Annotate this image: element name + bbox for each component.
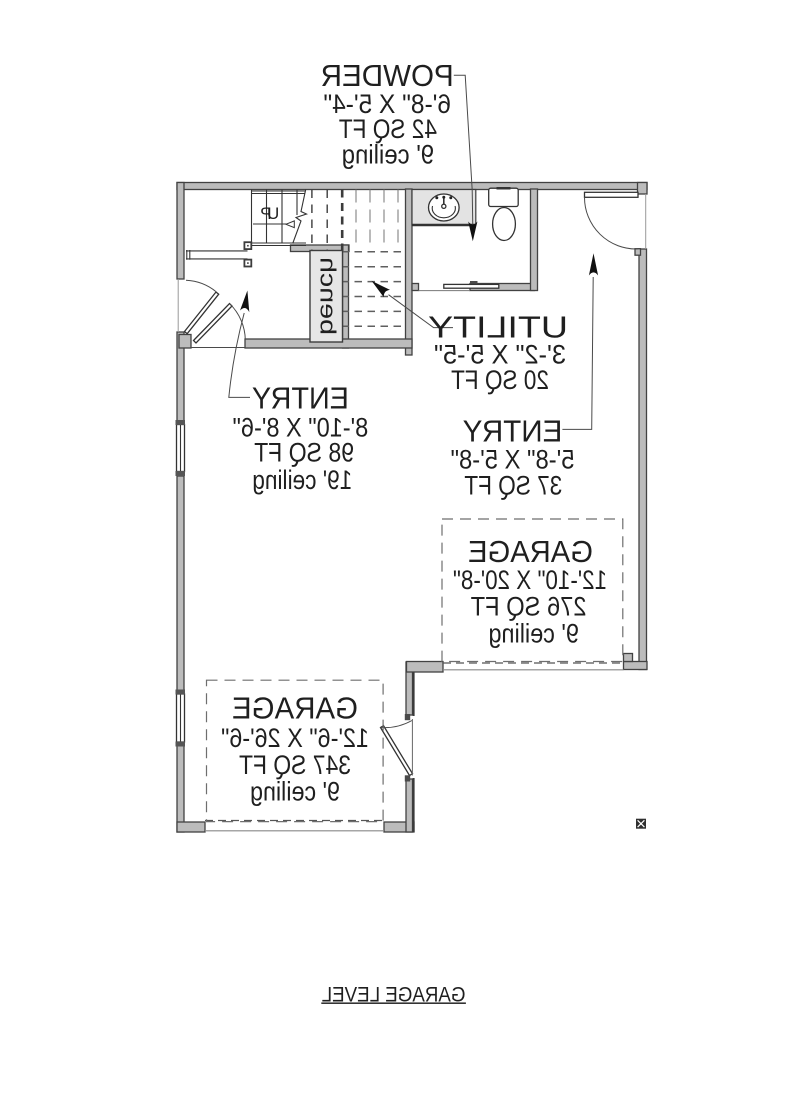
svg-text:ENTRY: ENTRY — [252, 381, 349, 416]
svg-text:12'-6" X 26'-6": 12'-6" X 26'-6" — [221, 723, 369, 753]
svg-text:ENTRY: ENTRY — [463, 413, 563, 448]
svg-text:GARAGE: GARAGE — [232, 690, 358, 725]
svg-text:347 SQ FT: 347 SQ FT — [239, 750, 351, 780]
svg-text:98 SQ FT: 98 SQ FT — [254, 437, 354, 467]
svg-text:20 SQ FT: 20 SQ FT — [451, 365, 549, 395]
svg-text:9' ceiling: 9' ceiling — [488, 619, 579, 649]
svg-text:UP: UP — [260, 204, 279, 223]
svg-text:12'-10" X 20'-8": 12'-10" X 20'-8" — [453, 565, 607, 595]
svg-text:37 SQ FT: 37 SQ FT — [464, 470, 562, 500]
svg-text:276 SQ FT: 276 SQ FT — [471, 592, 587, 622]
svg-text:19' ceiling: 19' ceiling — [252, 465, 352, 495]
svg-text:GARAGE: GARAGE — [468, 534, 593, 569]
svg-text:9' ceiling: 9' ceiling — [342, 139, 435, 169]
svg-text:9' ceiling: 9' ceiling — [250, 777, 340, 807]
svg-text:bench: bench — [315, 257, 340, 335]
